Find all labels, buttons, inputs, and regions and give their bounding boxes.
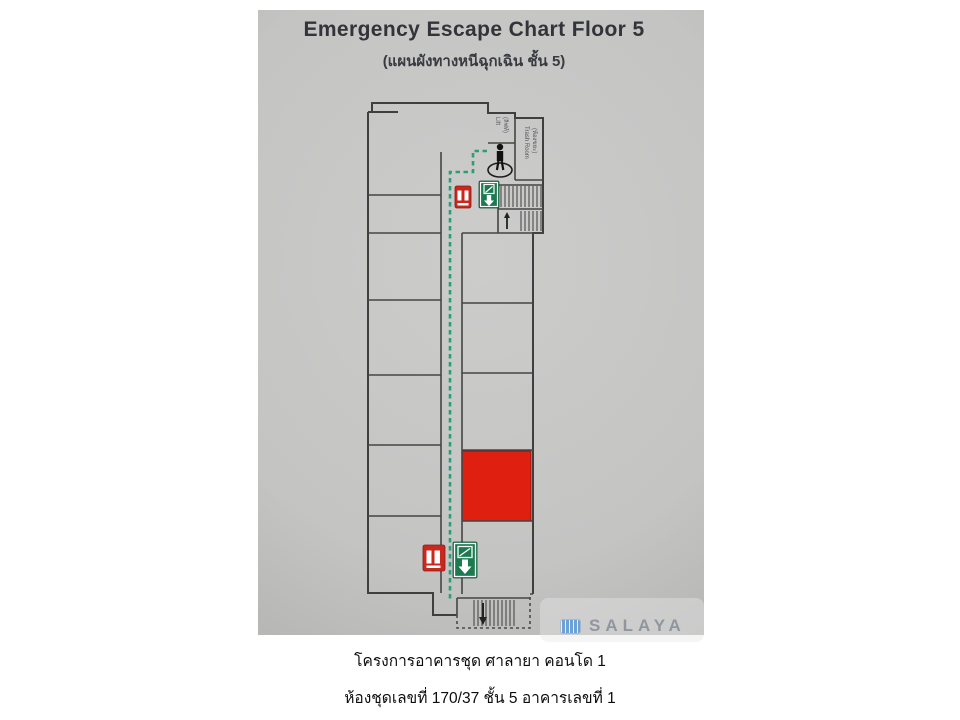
floor-plan: Lift (ลิฟท์) Trash Room (ห้องขยะ) (258, 10, 704, 635)
brand-text: SALAYA (589, 616, 686, 636)
salaya-logo: SALAYA (561, 616, 686, 636)
exit-sign-bottom (453, 542, 477, 578)
svg-text:(ห้องขยะ): (ห้องขยะ) (531, 128, 538, 153)
highlighted-unit-room (462, 451, 531, 521)
fire-extinguisher-icon (427, 551, 432, 564)
exit-sign-top (479, 181, 499, 208)
svg-text:Trash Room: Trash Room (523, 126, 529, 159)
stairs-arrow-up-head (504, 212, 510, 218)
escape-chart-photo: Emergency Escape Chart Floor 5 (แผนผังทา… (258, 10, 704, 635)
stairs-bottom (474, 600, 514, 626)
you-are-here-marker (488, 144, 512, 177)
svg-text:Lift: Lift (494, 117, 500, 125)
lift-room-label: Lift (ลิฟท์) (494, 117, 510, 133)
fire-extinguisher-icon (458, 191, 462, 201)
building-icon (561, 620, 580, 633)
caption-unit-line: ห้องชุดเลขที่ 170/37 ชั้น 5 อาคารเลขที่ … (0, 685, 960, 710)
svg-text:(ลิฟท์): (ลิฟท์) (502, 117, 510, 133)
page: Emergency Escape Chart Floor 5 (แผนผังทา… (0, 0, 960, 720)
caption-project-line: โครงการอาคารชุด ศาลายา คอนโด 1 (0, 648, 960, 673)
escape-route-line (450, 151, 487, 602)
location-ellipse (488, 163, 512, 177)
balcony-dashed-outline (457, 594, 533, 628)
trash-room-label: Trash Room (ห้องขยะ) (523, 126, 538, 159)
stairs-bottom-hatching (474, 600, 514, 626)
person-icon (497, 144, 504, 170)
fire-equipment-sign-bottom (423, 545, 445, 571)
fire-equipment-sign-top (455, 186, 471, 208)
